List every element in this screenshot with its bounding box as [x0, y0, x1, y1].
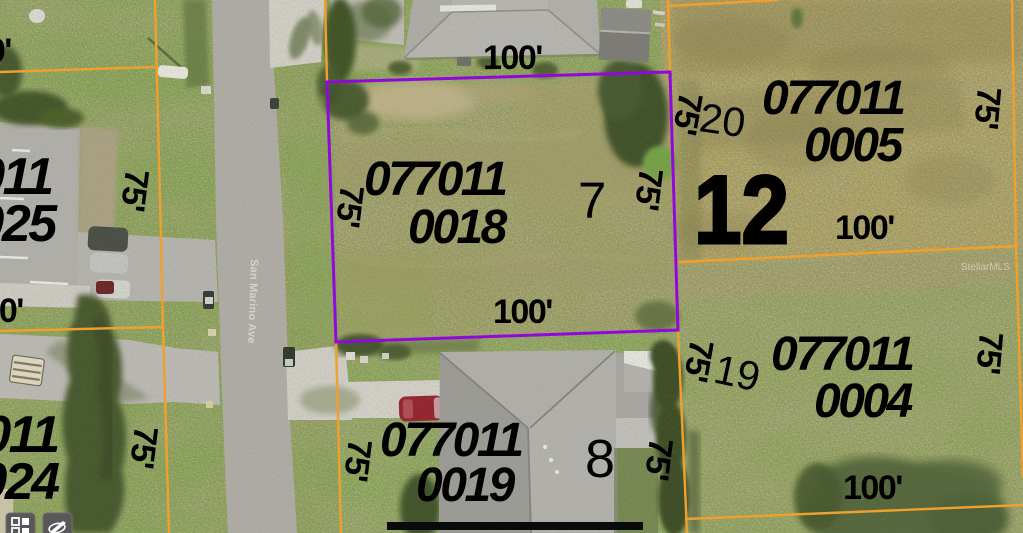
svg-text:StellarMLS: StellarMLS [961, 262, 1010, 273]
svg-text:7: 7 [578, 172, 606, 229]
svg-text:100': 100' [483, 39, 542, 77]
svg-text:0004: 0004 [814, 375, 913, 428]
svg-text:19: 19 [710, 346, 764, 400]
svg-text:077011: 077011 [771, 328, 913, 381]
svg-text:20: 20 [697, 94, 749, 146]
svg-text:100': 100' [835, 209, 894, 247]
svg-text:0025: 0025 [0, 195, 58, 253]
svg-text:75': 75' [966, 85, 1008, 130]
svg-text:0018: 0018 [408, 201, 508, 254]
svg-text:75': 75' [637, 436, 680, 482]
svg-text:0019: 0019 [416, 459, 516, 512]
svg-text:75': 75' [328, 183, 371, 229]
svg-text:12: 12 [694, 156, 789, 264]
svg-text:75': 75' [122, 424, 165, 470]
svg-text:077011: 077011 [762, 72, 904, 125]
svg-text:75': 75' [336, 437, 379, 483]
svg-text:100': 100' [493, 293, 552, 331]
svg-text:0005: 0005 [804, 119, 905, 172]
svg-text:100': 100' [0, 292, 23, 330]
svg-text:75': 75' [113, 167, 156, 213]
svg-text:8: 8 [585, 429, 615, 489]
svg-text:0024: 0024 [0, 453, 60, 511]
svg-text:75': 75' [627, 166, 670, 212]
svg-text:100': 100' [0, 32, 11, 70]
svg-text:100': 100' [843, 469, 902, 507]
svg-text:077011: 077011 [364, 153, 506, 206]
svg-text:75': 75' [968, 330, 1010, 375]
